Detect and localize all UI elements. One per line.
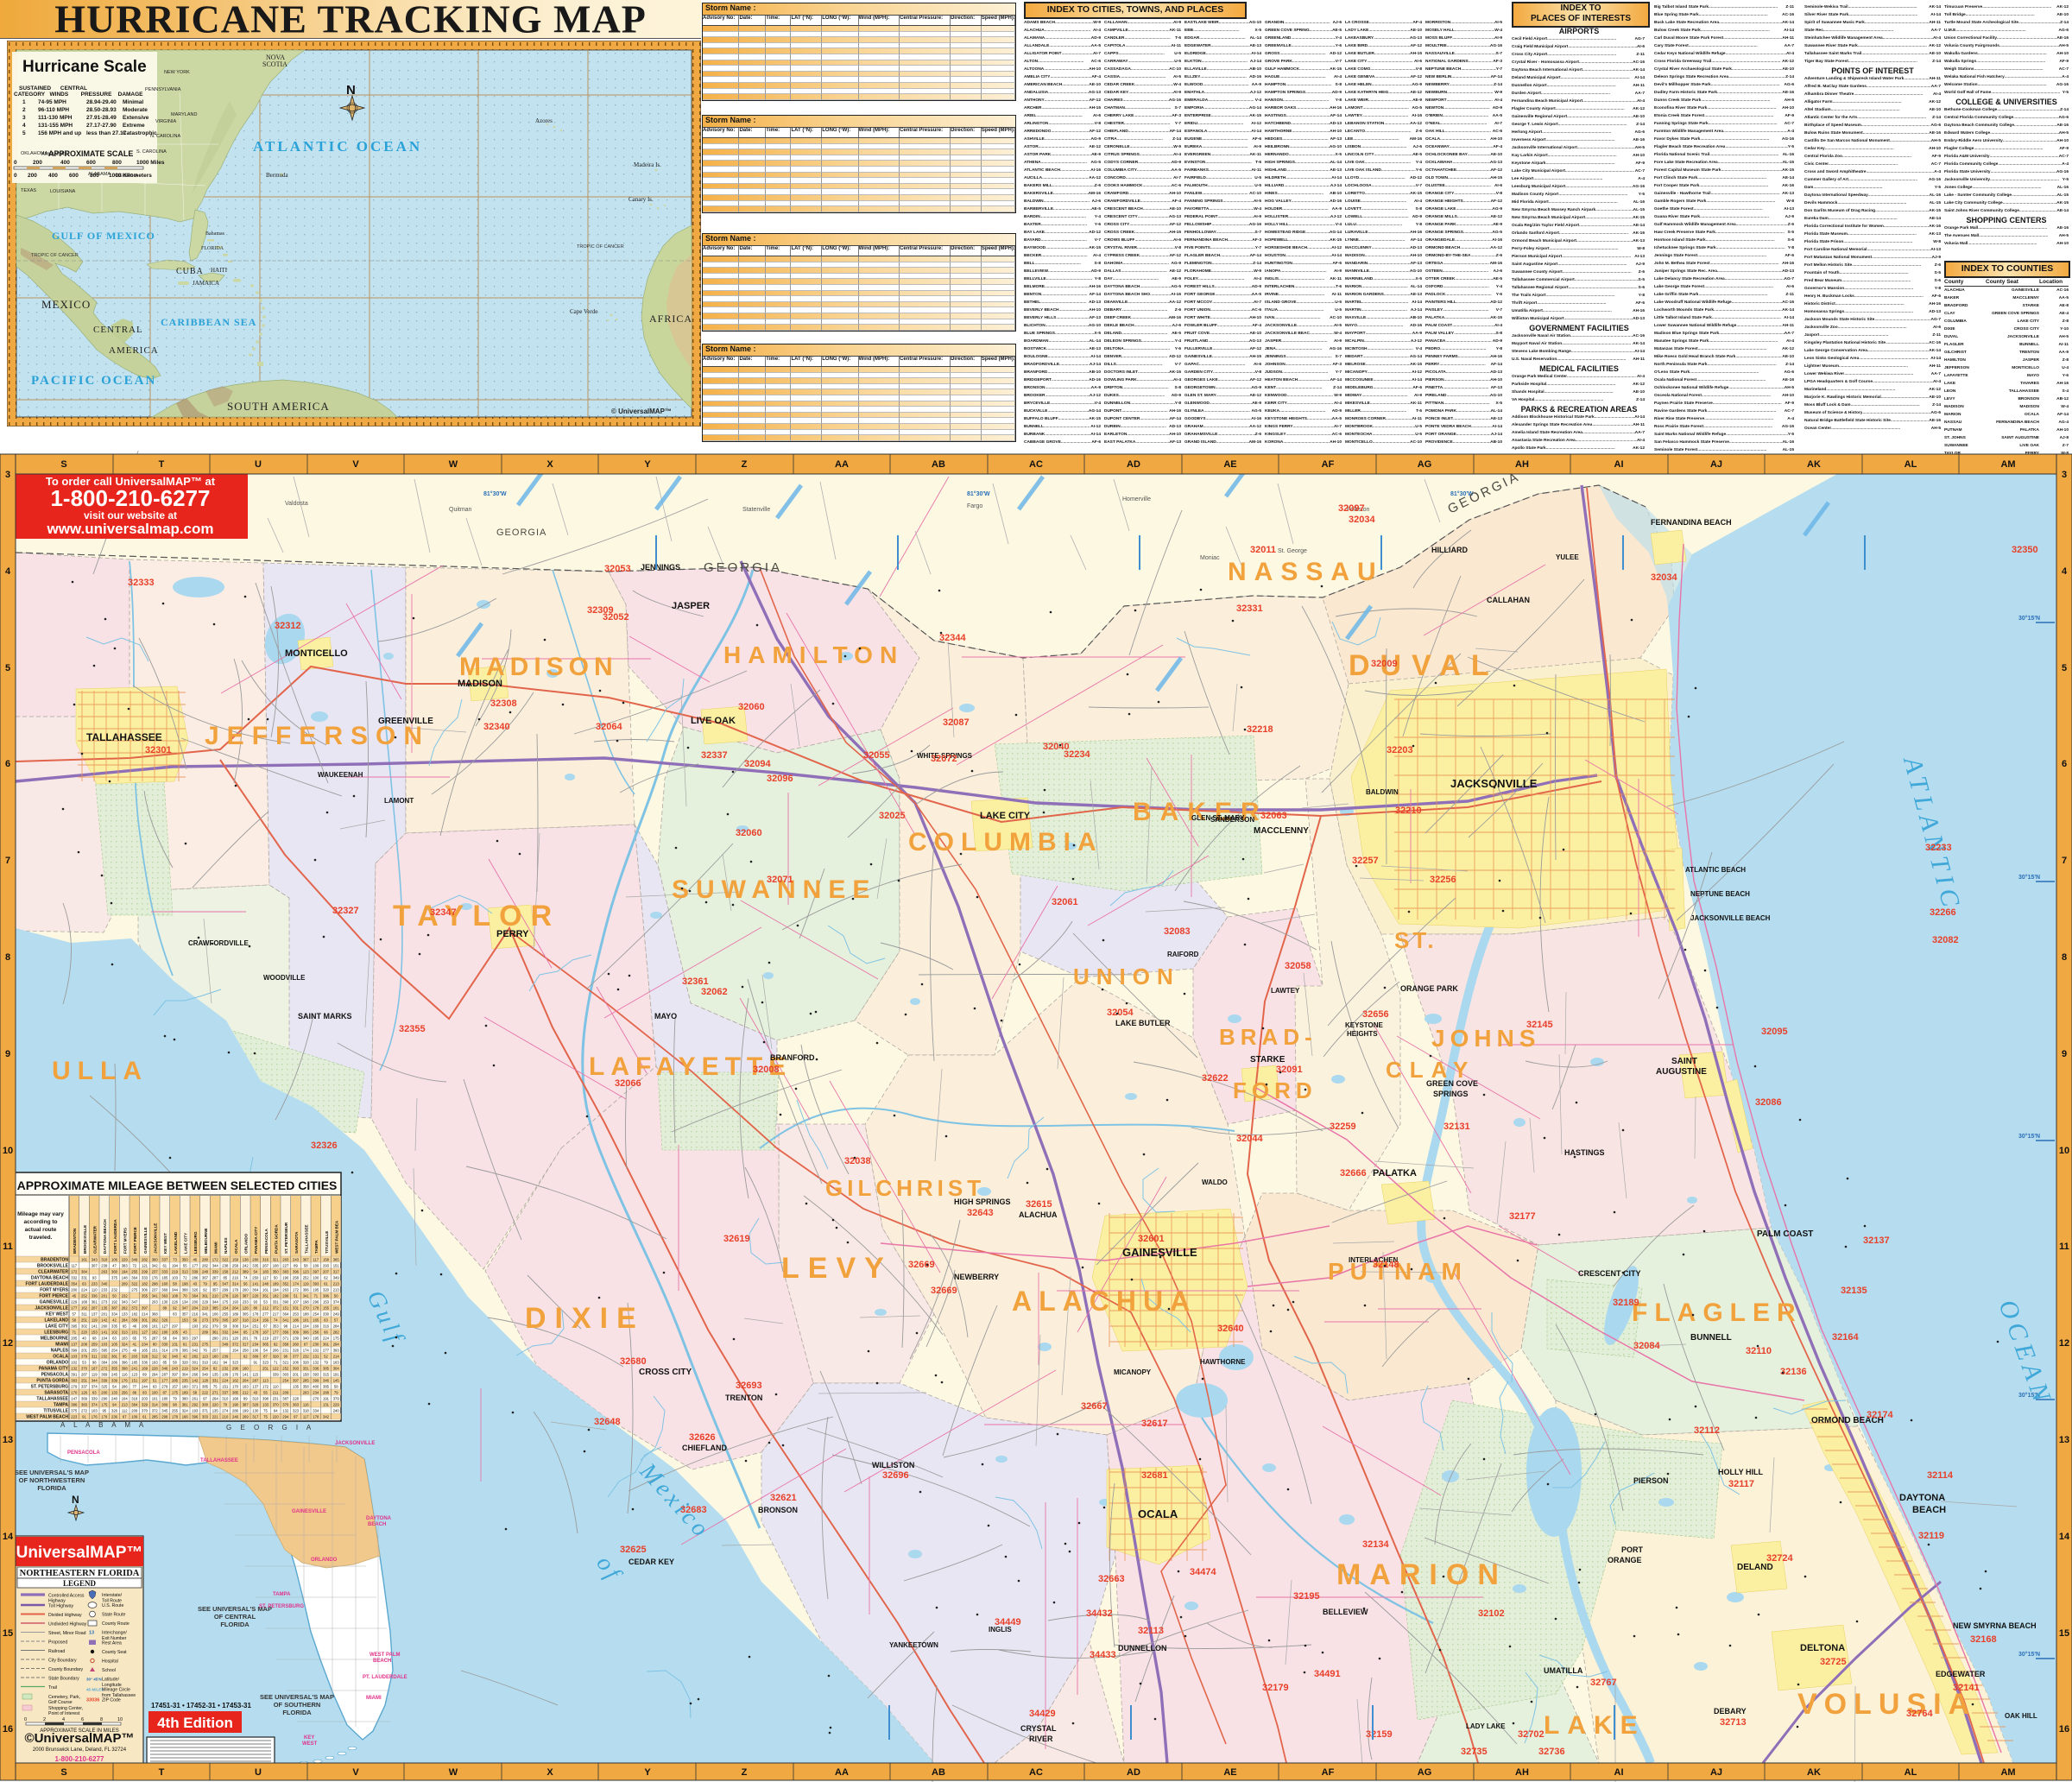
svg-text:ORLANDO: ORLANDO	[311, 1558, 338, 1563]
svg-text:132: 132	[71, 1367, 78, 1371]
svg-text:WEST PALM BEA: WEST PALM BEA	[335, 1220, 339, 1254]
svg-text:299: 299	[142, 1270, 148, 1274]
svg-text:V: V	[352, 1767, 359, 1778]
svg-text:LEVY: LEVY	[781, 1252, 893, 1285]
svg-text:282: 282	[333, 1330, 340, 1335]
svg-text:51: 51	[294, 1294, 298, 1299]
svg-text:397: 397	[172, 1373, 179, 1377]
svg-text:13: 13	[2059, 1435, 2069, 1445]
svg-text:DEBARY: DEBARY	[1714, 1707, 1747, 1716]
svg-text:229: 229	[122, 1258, 129, 1262]
svg-text:103: 103	[71, 1355, 78, 1359]
svg-text:153: 153	[92, 1330, 98, 1335]
svg-text:102: 102	[71, 1361, 78, 1365]
svg-text:7: 7	[2062, 856, 2067, 866]
svg-text:Street, Minor Road: Street, Minor Road	[48, 1631, 86, 1636]
svg-text:328: 328	[273, 1355, 280, 1359]
svg-text:75: 75	[142, 1336, 147, 1341]
svg-text:386: 386	[71, 1403, 78, 1407]
svg-text:MONTICELLO: MONTICELLO	[285, 648, 348, 659]
svg-text:NEW SMYRNA BEACH: NEW SMYRNA BEACH	[1953, 1621, 2037, 1630]
svg-text:CRAWFORDVILLE: CRAWFORDVILLE	[188, 939, 249, 947]
svg-text:PORT: PORT	[1621, 1545, 1644, 1554]
svg-text:101: 101	[303, 1318, 310, 1323]
svg-text:32055: 32055	[863, 750, 890, 761]
svg-text:384: 384	[81, 1270, 88, 1274]
svg-text:32724: 32724	[1766, 1553, 1793, 1564]
svg-text:131: 131	[323, 1403, 330, 1407]
svg-text:198: 198	[182, 1282, 189, 1286]
svg-text:397: 397	[313, 1270, 319, 1274]
svg-text:OCALA: OCALA	[234, 1239, 238, 1254]
svg-text:YANKEETOWN: YANKEETOWN	[889, 1641, 938, 1649]
svg-text:395: 395	[71, 1324, 78, 1329]
svg-text:43: 43	[183, 1330, 187, 1335]
svg-text:32064: 32064	[596, 722, 622, 732]
svg-text:133: 133	[111, 1391, 118, 1395]
svg-text:212: 212	[243, 1391, 250, 1395]
svg-text:284: 284	[122, 1318, 129, 1323]
svg-text:JACKSONVILLE: JACKSONVILLE	[335, 1441, 375, 1446]
svg-text:347: 347	[182, 1306, 189, 1311]
svg-text:32666: 32666	[1340, 1168, 1367, 1179]
svg-text:198: 198	[303, 1300, 310, 1305]
svg-text:277: 277	[262, 1312, 269, 1317]
svg-text:365: 365	[262, 1343, 269, 1347]
svg-text:JENNINGS: JENNINGS	[641, 563, 680, 572]
svg-text:S: S	[60, 1767, 66, 1778]
svg-text:381: 381	[182, 1403, 189, 1407]
svg-text:Bermuda: Bermuda	[266, 172, 289, 179]
svg-text:220: 220	[81, 1330, 88, 1335]
svg-text:178: 178	[101, 1415, 108, 1419]
svg-text:ST.: ST.	[1394, 927, 1437, 953]
svg-text:LAKE CITY: LAKE CITY	[46, 1324, 69, 1330]
svg-text:67: 67	[304, 1343, 308, 1347]
svg-text:162: 162	[202, 1324, 209, 1329]
svg-text:354: 354	[71, 1282, 78, 1286]
svg-text:213: 213	[122, 1403, 129, 1407]
svg-text:133: 133	[262, 1403, 269, 1407]
svg-text:103: 103	[92, 1409, 98, 1413]
svg-text:Statenville: Statenville	[742, 507, 770, 513]
svg-text:333: 333	[142, 1276, 148, 1280]
svg-text:343: 343	[92, 1258, 98, 1262]
svg-text:61: 61	[324, 1282, 328, 1286]
svg-text:Quitman: Quitman	[449, 507, 472, 513]
svg-text:61: 61	[142, 1415, 147, 1419]
svg-text:193: 193	[232, 1300, 239, 1305]
svg-text:102: 102	[111, 1330, 118, 1335]
svg-text:BEACH: BEACH	[373, 1659, 391, 1664]
svg-text:368: 368	[152, 1312, 159, 1317]
svg-text:170: 170	[71, 1391, 78, 1395]
svg-text:32137: 32137	[1863, 1235, 1890, 1246]
svg-text:243: 243	[293, 1258, 300, 1262]
svg-text:LOUISIANA: LOUISIANA	[50, 189, 76, 194]
svg-text:82: 82	[213, 1367, 218, 1371]
svg-text:32361: 32361	[682, 976, 709, 987]
svg-text:Latitude/: Latitude/	[102, 1678, 119, 1683]
svg-text:32060: 32060	[738, 702, 765, 712]
svg-text:151: 151	[282, 1306, 289, 1311]
svg-text:ULLA: ULLA	[52, 1057, 148, 1085]
svg-text:162: 162	[212, 1361, 219, 1365]
svg-text:X: X	[546, 459, 553, 470]
svg-text:117: 117	[303, 1415, 309, 1419]
svg-text:AA: AA	[835, 1767, 849, 1778]
svg-text:165: 165	[313, 1318, 319, 1323]
svg-text:229: 229	[202, 1300, 209, 1305]
svg-text:LIVE OAK: LIVE OAK	[691, 716, 736, 726]
svg-text:MARYLAND: MARYLAND	[171, 112, 197, 117]
svg-text:280: 280	[202, 1258, 209, 1262]
svg-text:383: 383	[71, 1379, 78, 1383]
svg-text:167: 167	[92, 1367, 98, 1371]
svg-text:0: 0	[24, 1717, 27, 1722]
svg-text:AJ: AJ	[1710, 1767, 1722, 1778]
svg-text:MADISON: MADISON	[458, 679, 502, 689]
svg-text:43: 43	[193, 1282, 197, 1286]
svg-text:AK: AK	[1807, 459, 1821, 470]
svg-text:76: 76	[203, 1349, 207, 1353]
svg-text:AH: AH	[1515, 1767, 1529, 1778]
svg-text:286: 286	[111, 1361, 118, 1365]
svg-text:NORTHEASTERN FLORIDA: NORTHEASTERN FLORIDA	[20, 1569, 140, 1578]
svg-text:160: 160	[243, 1367, 250, 1371]
svg-text:232: 232	[101, 1355, 108, 1359]
svg-text:383: 383	[81, 1403, 88, 1407]
svg-text:FERNANDINA BEACH: FERNANDINA BEACH	[1651, 518, 1732, 527]
svg-text:185: 185	[161, 1276, 168, 1280]
svg-text:SAINT MARKS: SAINT MARKS	[298, 1012, 352, 1021]
svg-text:132: 132	[313, 1361, 319, 1365]
svg-text:339: 339	[101, 1379, 108, 1383]
svg-text:116: 116	[122, 1373, 128, 1377]
svg-text:79: 79	[334, 1391, 338, 1395]
svg-text:6: 6	[81, 1717, 84, 1722]
svg-text:210: 210	[222, 1415, 229, 1419]
svg-text:32347: 32347	[430, 907, 457, 918]
svg-text:301: 301	[192, 1361, 199, 1365]
svg-text:333: 333	[161, 1270, 168, 1274]
svg-text:340: 340	[172, 1355, 179, 1359]
svg-text:163: 163	[333, 1361, 340, 1365]
svg-text:ALABAMA: ALABAMA	[88, 172, 111, 177]
svg-text:290: 290	[212, 1336, 219, 1341]
svg-text:391: 391	[71, 1373, 78, 1377]
svg-text:151: 151	[222, 1385, 229, 1389]
svg-text:32203: 32203	[1387, 745, 1413, 755]
svg-text:314: 314	[161, 1349, 168, 1353]
svg-text:Y: Y	[644, 459, 651, 470]
svg-text:32025: 32025	[879, 811, 906, 821]
svg-text:337: 337	[81, 1385, 88, 1389]
svg-text:324: 324	[192, 1367, 199, 1371]
svg-text:332: 332	[222, 1330, 229, 1335]
svg-text:W: W	[449, 459, 458, 470]
svg-text:363: 363	[293, 1403, 300, 1407]
svg-text:OF CENTRAL: OF CENTRAL	[214, 1613, 256, 1621]
svg-text:162: 162	[81, 1306, 88, 1311]
svg-text:360: 360	[152, 1258, 159, 1262]
svg-text:151: 151	[333, 1264, 340, 1268]
svg-text:369: 369	[161, 1288, 168, 1292]
svg-text:GREEN COVE: GREEN COVE	[1426, 1079, 1478, 1088]
svg-text:160: 160	[161, 1282, 168, 1286]
svg-text:361: 361	[323, 1343, 330, 1347]
svg-text:11: 11	[2059, 1242, 2069, 1252]
svg-text:71: 71	[313, 1294, 318, 1299]
svg-text:28.94-29.40: 28.94-29.40	[86, 99, 117, 105]
svg-text:339: 339	[212, 1270, 219, 1274]
svg-text:State Route: State Route	[102, 1613, 126, 1618]
svg-text:383: 383	[282, 1270, 289, 1274]
svg-text:384: 384	[131, 1403, 138, 1407]
svg-text:5: 5	[22, 130, 26, 136]
svg-text:168: 168	[81, 1300, 88, 1305]
svg-text:385: 385	[323, 1367, 330, 1371]
svg-text:190: 190	[282, 1276, 289, 1280]
svg-text:TROPIC OF CANCER: TROPIC OF CANCER	[31, 253, 79, 258]
svg-text:58: 58	[173, 1361, 177, 1365]
svg-text:52: 52	[324, 1355, 328, 1359]
svg-text:269: 269	[243, 1415, 250, 1419]
svg-text:141: 141	[243, 1373, 250, 1377]
svg-text:Interchange/: Interchange/	[102, 1631, 127, 1636]
svg-text:FORD: FORD	[1233, 1077, 1317, 1103]
svg-text:182: 182	[273, 1294, 280, 1299]
svg-text:323: 323	[293, 1409, 300, 1413]
svg-text:32113: 32113	[1138, 1626, 1164, 1636]
svg-text:309: 309	[293, 1330, 300, 1335]
svg-text:AL: AL	[1905, 1767, 1917, 1778]
svg-text:32736: 32736	[1538, 1747, 1565, 1757]
svg-text:201: 201	[293, 1373, 300, 1377]
svg-text:318: 318	[243, 1318, 250, 1323]
svg-text:Undivided Highway: Undivided Highway	[48, 1622, 87, 1627]
svg-text:105: 105	[172, 1330, 179, 1335]
svg-text:258: 258	[232, 1264, 239, 1268]
svg-text:229: 229	[333, 1403, 340, 1407]
svg-text:32344: 32344	[939, 633, 966, 643]
svg-text:357: 357	[212, 1288, 219, 1292]
svg-text:130: 130	[161, 1300, 168, 1305]
svg-text:326: 326	[111, 1409, 118, 1413]
svg-text:32308: 32308	[490, 698, 517, 709]
svg-text:113: 113	[262, 1379, 268, 1383]
svg-text:237: 237	[273, 1336, 280, 1341]
svg-text:32119: 32119	[1918, 1531, 1944, 1541]
svg-text:284: 284	[333, 1324, 340, 1329]
svg-text:172: 172	[71, 1270, 78, 1274]
svg-text:212: 212	[232, 1270, 239, 1274]
svg-text:298: 298	[161, 1415, 168, 1419]
svg-text:traveled.: traveled.	[29, 1235, 53, 1241]
svg-text:285: 285	[152, 1415, 159, 1419]
svg-text:259: 259	[92, 1343, 98, 1347]
svg-text:165: 165	[142, 1349, 148, 1353]
svg-text:84: 84	[173, 1336, 177, 1341]
svg-text:128: 128	[202, 1379, 209, 1383]
svg-text:Fargo: Fargo	[967, 503, 982, 509]
svg-text:214: 214	[142, 1312, 148, 1317]
svg-text:101: 101	[333, 1306, 340, 1311]
svg-text:331: 331	[81, 1276, 88, 1280]
svg-text:102: 102	[313, 1349, 319, 1353]
svg-text:321: 321	[282, 1361, 289, 1365]
svg-text:75: 75	[263, 1409, 268, 1413]
svg-text:43: 43	[253, 1391, 257, 1395]
svg-text:JACKSONVILLE: JACKSONVILLE	[154, 1223, 158, 1254]
svg-text:393: 393	[313, 1373, 319, 1377]
svg-text:101: 101	[152, 1397, 159, 1401]
svg-text:123: 123	[131, 1373, 138, 1377]
svg-text:130: 130	[252, 1409, 259, 1413]
svg-text:DAYTONA BEACH: DAYTONA BEACH	[31, 1276, 69, 1281]
svg-text:32340: 32340	[483, 722, 510, 732]
svg-text:110: 110	[92, 1288, 98, 1292]
svg-text:355: 355	[111, 1367, 118, 1371]
svg-text:less than 27.17: less than 27.17	[86, 130, 127, 136]
svg-text:147: 147	[71, 1397, 78, 1401]
svg-text:286: 286	[192, 1276, 199, 1280]
svg-text:342: 342	[192, 1349, 199, 1353]
svg-text:211: 211	[273, 1391, 279, 1395]
svg-text:32052: 32052	[603, 612, 629, 622]
svg-text:363: 363	[161, 1294, 168, 1299]
svg-text:104: 104	[101, 1336, 108, 1341]
svg-text:CARIBBEAN SEA: CARIBBEAN SEA	[161, 316, 256, 328]
svg-text:MIAMI: MIAMI	[366, 1696, 382, 1701]
svg-text:340: 340	[202, 1373, 209, 1377]
svg-text:119: 119	[92, 1373, 98, 1377]
svg-text:32702: 32702	[1518, 1729, 1545, 1740]
svg-text:161: 161	[81, 1258, 88, 1262]
svg-text:YULEE: YULEE	[1556, 553, 1579, 561]
svg-text:28.50-28.93: 28.50-28.93	[86, 107, 117, 113]
svg-text:GEORGIA: GEORGIA	[704, 560, 782, 575]
svg-text:actual route: actual route	[25, 1227, 57, 1233]
svg-text:231: 231	[273, 1397, 280, 1401]
svg-text:BUNNELL: BUNNELL	[1690, 1333, 1732, 1343]
svg-text:285: 285	[172, 1379, 179, 1383]
svg-text:MELBOURNE: MELBOURNE	[204, 1228, 208, 1254]
svg-text:92: 92	[162, 1355, 167, 1359]
svg-text:228: 228	[293, 1397, 300, 1401]
svg-text:287: 287	[252, 1379, 259, 1383]
svg-text:65: 65	[123, 1324, 127, 1329]
svg-text:32112: 32112	[1694, 1425, 1720, 1436]
svg-text:City Boundary: City Boundary	[48, 1659, 77, 1664]
svg-text:Point of Interest: Point of Interest	[48, 1711, 80, 1716]
svg-text:STARKE: STARKE	[1250, 1055, 1286, 1065]
svg-text:326: 326	[192, 1288, 199, 1292]
svg-text:203: 203	[152, 1300, 159, 1305]
svg-text:BRAD-: BRAD-	[1219, 1024, 1317, 1050]
svg-text:BRADENTON: BRADENTON	[41, 1258, 68, 1263]
svg-text:GAINESVILLE: GAINESVILLE	[292, 1509, 326, 1514]
svg-text:237: 237	[152, 1288, 159, 1292]
svg-text:200: 200	[101, 1391, 108, 1395]
svg-text:372: 372	[273, 1306, 280, 1311]
svg-text:306: 306	[303, 1288, 310, 1292]
svg-text:375: 375	[111, 1276, 118, 1280]
svg-text:CLEARWATER: CLEARWATER	[38, 1270, 68, 1275]
svg-text:4: 4	[62, 1717, 65, 1722]
svg-text:275: 275	[122, 1349, 129, 1353]
svg-text:HOLLY HILL: HOLLY HILL	[1718, 1468, 1764, 1476]
svg-text:32625: 32625	[620, 1545, 647, 1555]
svg-text:112: 112	[122, 1409, 128, 1413]
svg-text:32135: 32135	[1841, 1286, 1867, 1296]
svg-text:389: 389	[243, 1270, 250, 1274]
svg-text:328: 328	[182, 1361, 189, 1365]
svg-text:56: 56	[243, 1282, 248, 1286]
svg-text:131-155 MPH: 131-155 MPH	[38, 123, 73, 129]
svg-text:32210: 32210	[1395, 806, 1422, 816]
svg-text:32259: 32259	[1330, 1122, 1356, 1132]
svg-text:325: 325	[101, 1385, 108, 1389]
svg-text:LAMONT: LAMONT	[384, 797, 414, 805]
svg-text:AI: AI	[1614, 1767, 1624, 1778]
svg-text:34474: 34474	[1190, 1567, 1216, 1577]
svg-text:207: 207	[92, 1306, 98, 1311]
svg-text:ST. PETERSBURG: ST. PETERSBURG	[31, 1385, 68, 1390]
svg-text:393: 393	[293, 1367, 300, 1371]
svg-text:192: 192	[111, 1300, 118, 1305]
svg-text:374: 374	[333, 1300, 340, 1305]
svg-text:32164: 32164	[1832, 1332, 1859, 1343]
svg-text:169: 169	[142, 1367, 148, 1371]
svg-text:379: 379	[333, 1397, 340, 1401]
svg-text:16: 16	[3, 1724, 13, 1735]
svg-text:PANAMA CITY: PANAMA CITY	[254, 1227, 258, 1254]
svg-text:1: 1	[22, 99, 26, 105]
svg-text:Rest Area: Rest Area	[102, 1641, 122, 1646]
svg-text:KEY: KEY	[304, 1735, 314, 1741]
svg-text:32053: 32053	[604, 564, 631, 574]
svg-text:12: 12	[3, 1338, 13, 1349]
svg-text:AFRICA: AFRICA	[649, 313, 692, 325]
svg-text:103: 103	[172, 1276, 179, 1280]
svg-text:101: 101	[152, 1324, 159, 1329]
svg-text:400: 400	[48, 173, 58, 179]
svg-text:8: 8	[100, 1717, 103, 1722]
svg-text:50: 50	[112, 1294, 117, 1299]
svg-text:239: 239	[293, 1336, 300, 1341]
svg-text:Cape Verde: Cape Verde	[570, 308, 597, 315]
svg-text:106: 106	[111, 1258, 118, 1262]
svg-text:34449: 34449	[995, 1617, 1021, 1627]
svg-text:FORT PIERCE: FORT PIERCE	[133, 1227, 137, 1254]
svg-text:194: 194	[122, 1270, 129, 1274]
svg-text:313: 313	[122, 1330, 129, 1335]
svg-text:32159: 32159	[1366, 1729, 1393, 1740]
svg-text:BROOKSVILLE: BROOKSVILLE	[37, 1264, 69, 1269]
svg-text:SANDERSON: SANDERSON	[1210, 816, 1254, 824]
svg-text:81°30'W: 81°30'W	[967, 490, 990, 497]
svg-text:32327: 32327	[332, 906, 359, 916]
svg-text:61: 61	[162, 1264, 167, 1268]
svg-text:Railroad: Railroad	[48, 1649, 65, 1654]
svg-text:50: 50	[223, 1324, 227, 1329]
svg-text:WILLISTON: WILLISTON	[872, 1461, 914, 1469]
svg-text:32669: 32669	[908, 1260, 935, 1270]
svg-text:344: 344	[92, 1379, 98, 1383]
svg-text:189: 189	[182, 1391, 189, 1395]
svg-text:310: 310	[252, 1397, 259, 1401]
